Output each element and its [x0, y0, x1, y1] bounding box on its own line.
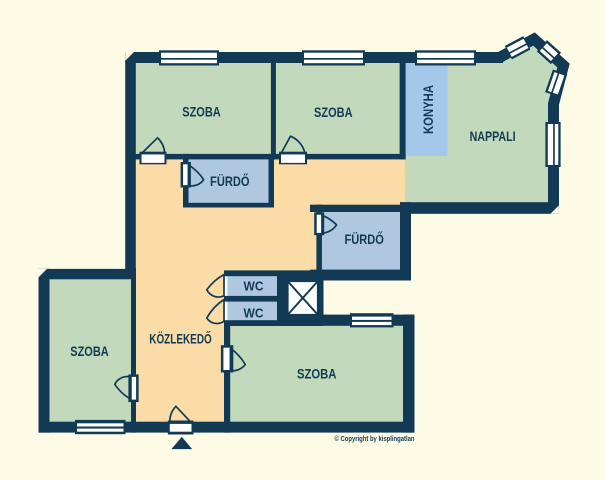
svg-text:SZOBA: SZOBA — [314, 104, 353, 120]
svg-text:KÖZLEKEDŐ: KÖZLEKEDŐ — [149, 330, 212, 347]
svg-text:© Copyright by kisplingatlan: © Copyright by kisplingatlan — [335, 434, 415, 443]
svg-text:NAPPALI: NAPPALI — [470, 128, 516, 144]
svg-text:KONYHA: KONYHA — [420, 85, 436, 134]
svg-text:FÜRDŐ: FÜRDŐ — [344, 230, 384, 247]
svg-text:SZOBA: SZOBA — [297, 365, 337, 381]
svg-text:WC: WC — [244, 307, 264, 321]
svg-text:SZOBA: SZOBA — [182, 103, 221, 119]
svg-text:FÜRDŐ: FÜRDŐ — [210, 172, 250, 189]
svg-text:WC: WC — [244, 279, 264, 293]
svg-text:SZOBA: SZOBA — [70, 343, 109, 359]
